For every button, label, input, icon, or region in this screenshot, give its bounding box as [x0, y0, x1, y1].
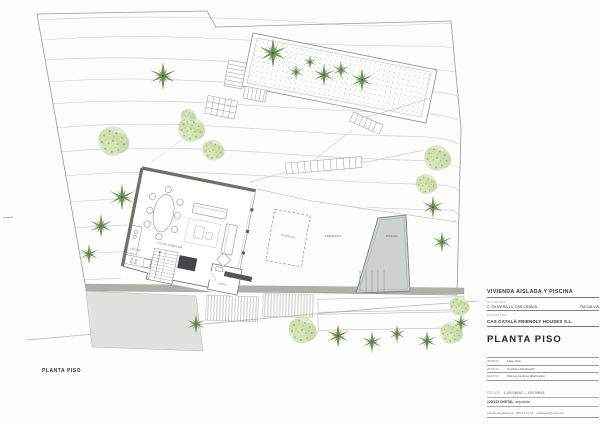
scale-row: ESCALA 1:100 DIN A3 — 1:50 DIN A1	[487, 390, 599, 398]
palm-tree-icon	[327, 324, 349, 348]
bush-icon	[289, 317, 317, 343]
bush-icon	[203, 140, 225, 160]
revision-date: 05/05/23	[487, 358, 507, 366]
left-margin-tick	[3, 217, 13, 218]
address-municipality: TM CALVIA	[580, 305, 599, 309]
address-street: C. OLIVERA 14, CAS CATALÀ	[487, 305, 537, 309]
revision-date: 20/06/23	[487, 365, 507, 373]
palm-tree-icon	[418, 331, 437, 351]
revision-note: Fase obra	[507, 358, 599, 366]
plan-caption: PLANTA PISO	[42, 368, 81, 374]
bush-icon	[181, 109, 196, 123]
aseo-room: ASEO	[208, 264, 243, 295]
title-block: VIVIENDA AISLADA Y PISCINA SITUACION C. …	[487, 289, 599, 418]
promotor-label: PROMOTOR	[487, 313, 599, 317]
project-address: C. OLIVERA 14, CAS CATALÀ TM CALVIA	[487, 305, 599, 312]
palm-tree-icon	[423, 196, 444, 218]
label-terraza: TERRAZA	[325, 234, 341, 238]
project-title: VIVIENDA AISLADA Y PISCINA	[487, 289, 599, 298]
revision-note: Últimos cambios distribución	[507, 373, 599, 381]
table-row: 20/06/23 Cambios distribución	[487, 365, 599, 373]
table-row: 01/07/23 Últimos cambios distribución	[487, 373, 599, 381]
scale-label: ESCALA	[487, 391, 500, 395]
sheet-title: PLANTA PISO	[487, 334, 599, 345]
palm-tree-icon	[150, 62, 176, 90]
contact-row: estudio arquitectura · 659.11.70.73 · ma…	[487, 409, 599, 419]
driveway	[86, 291, 203, 351]
situacion-label: SITUACION	[487, 300, 599, 304]
planter-boxes	[318, 297, 464, 331]
revision-table: 05/05/23 Fase obra 20/06/23 Cambios dist…	[487, 357, 599, 381]
revision-note: Cambios distribución	[507, 365, 599, 373]
bush-icon	[99, 127, 130, 156]
access-ramps	[206, 294, 314, 322]
palm-tree-icon	[389, 325, 406, 343]
drawing-sheet: PERGOLA TERRAZA PISCINA ASEO	[0, 0, 600, 424]
palm-tree-icon	[362, 331, 382, 353]
label-piscina: PISCINA	[386, 235, 398, 238]
revision-date: 01/07/23	[487, 373, 507, 381]
scale-value: 1:100 DIN A3 — 1:50 DIN A1	[504, 391, 545, 395]
bush-icon	[416, 174, 437, 194]
palm-tree-icon	[110, 184, 135, 211]
author-role: , arquitecto	[514, 400, 531, 404]
author-name: 120/122 DIGITAL	[487, 400, 514, 404]
bush-icon	[450, 297, 470, 315]
table-row: 05/05/23 Fase obra	[487, 358, 599, 366]
author-row: 120/122 DIGITAL, arquitecto	[487, 398, 599, 407]
roof-terrace-deck	[242, 33, 437, 123]
bush-icon	[425, 146, 452, 171]
client-name: CAS CATALÀ FRIENDLY HOUSES S.L.	[487, 318, 599, 328]
